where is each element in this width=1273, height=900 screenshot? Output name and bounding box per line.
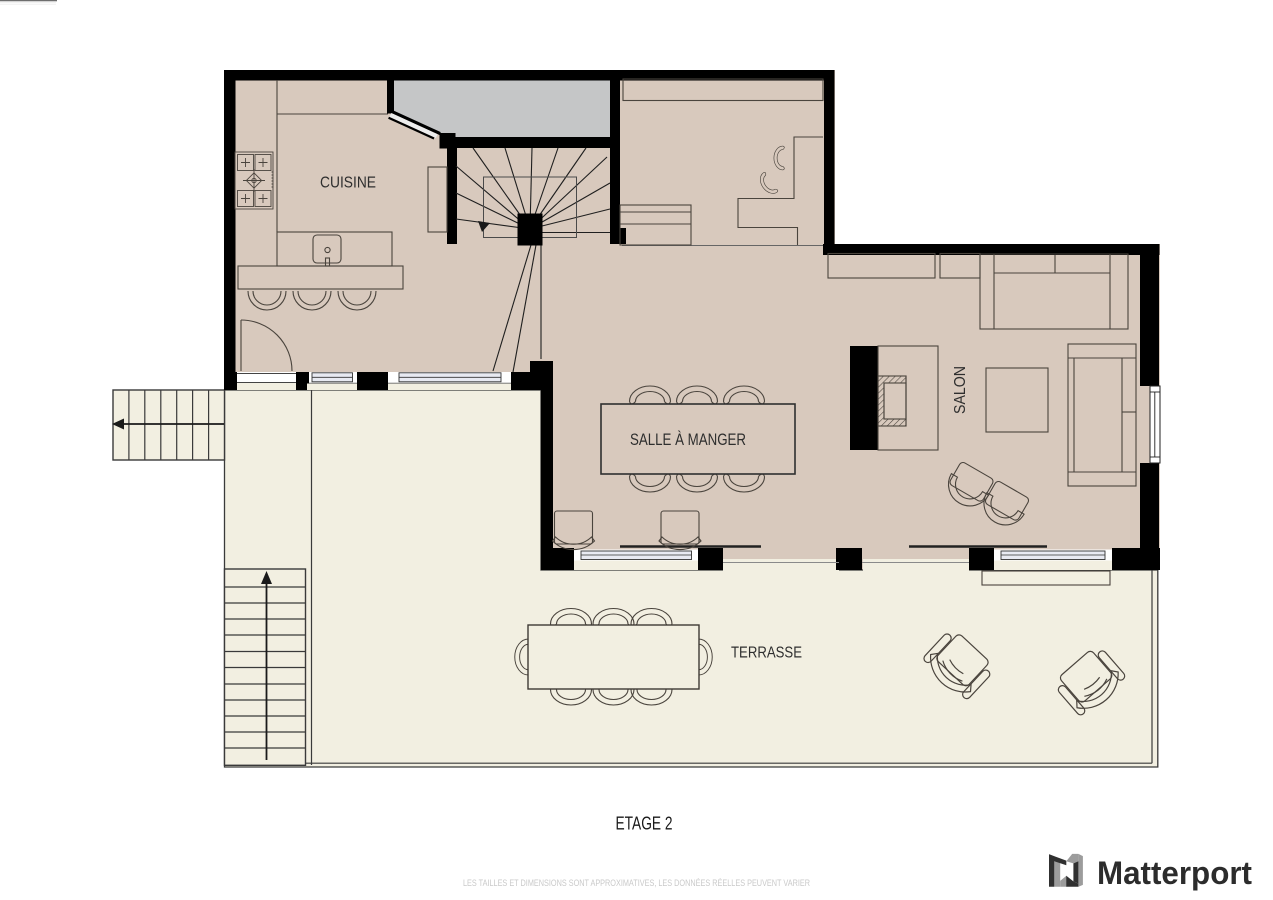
svg-text:TERRASSE: TERRASSE xyxy=(731,645,802,662)
svg-text:LES TAILLES ET DIMENSIONS SONT: LES TAILLES ET DIMENSIONS SONT APPROXIMA… xyxy=(463,878,810,888)
svg-text:ETAGE 2: ETAGE 2 xyxy=(616,813,673,834)
svg-text:SALLE À MANGER: SALLE À MANGER xyxy=(630,430,746,449)
svg-text:CUISINE: CUISINE xyxy=(320,175,376,192)
svg-text:Matterport: Matterport xyxy=(1097,855,1252,891)
svg-text:SALON: SALON xyxy=(952,366,969,414)
